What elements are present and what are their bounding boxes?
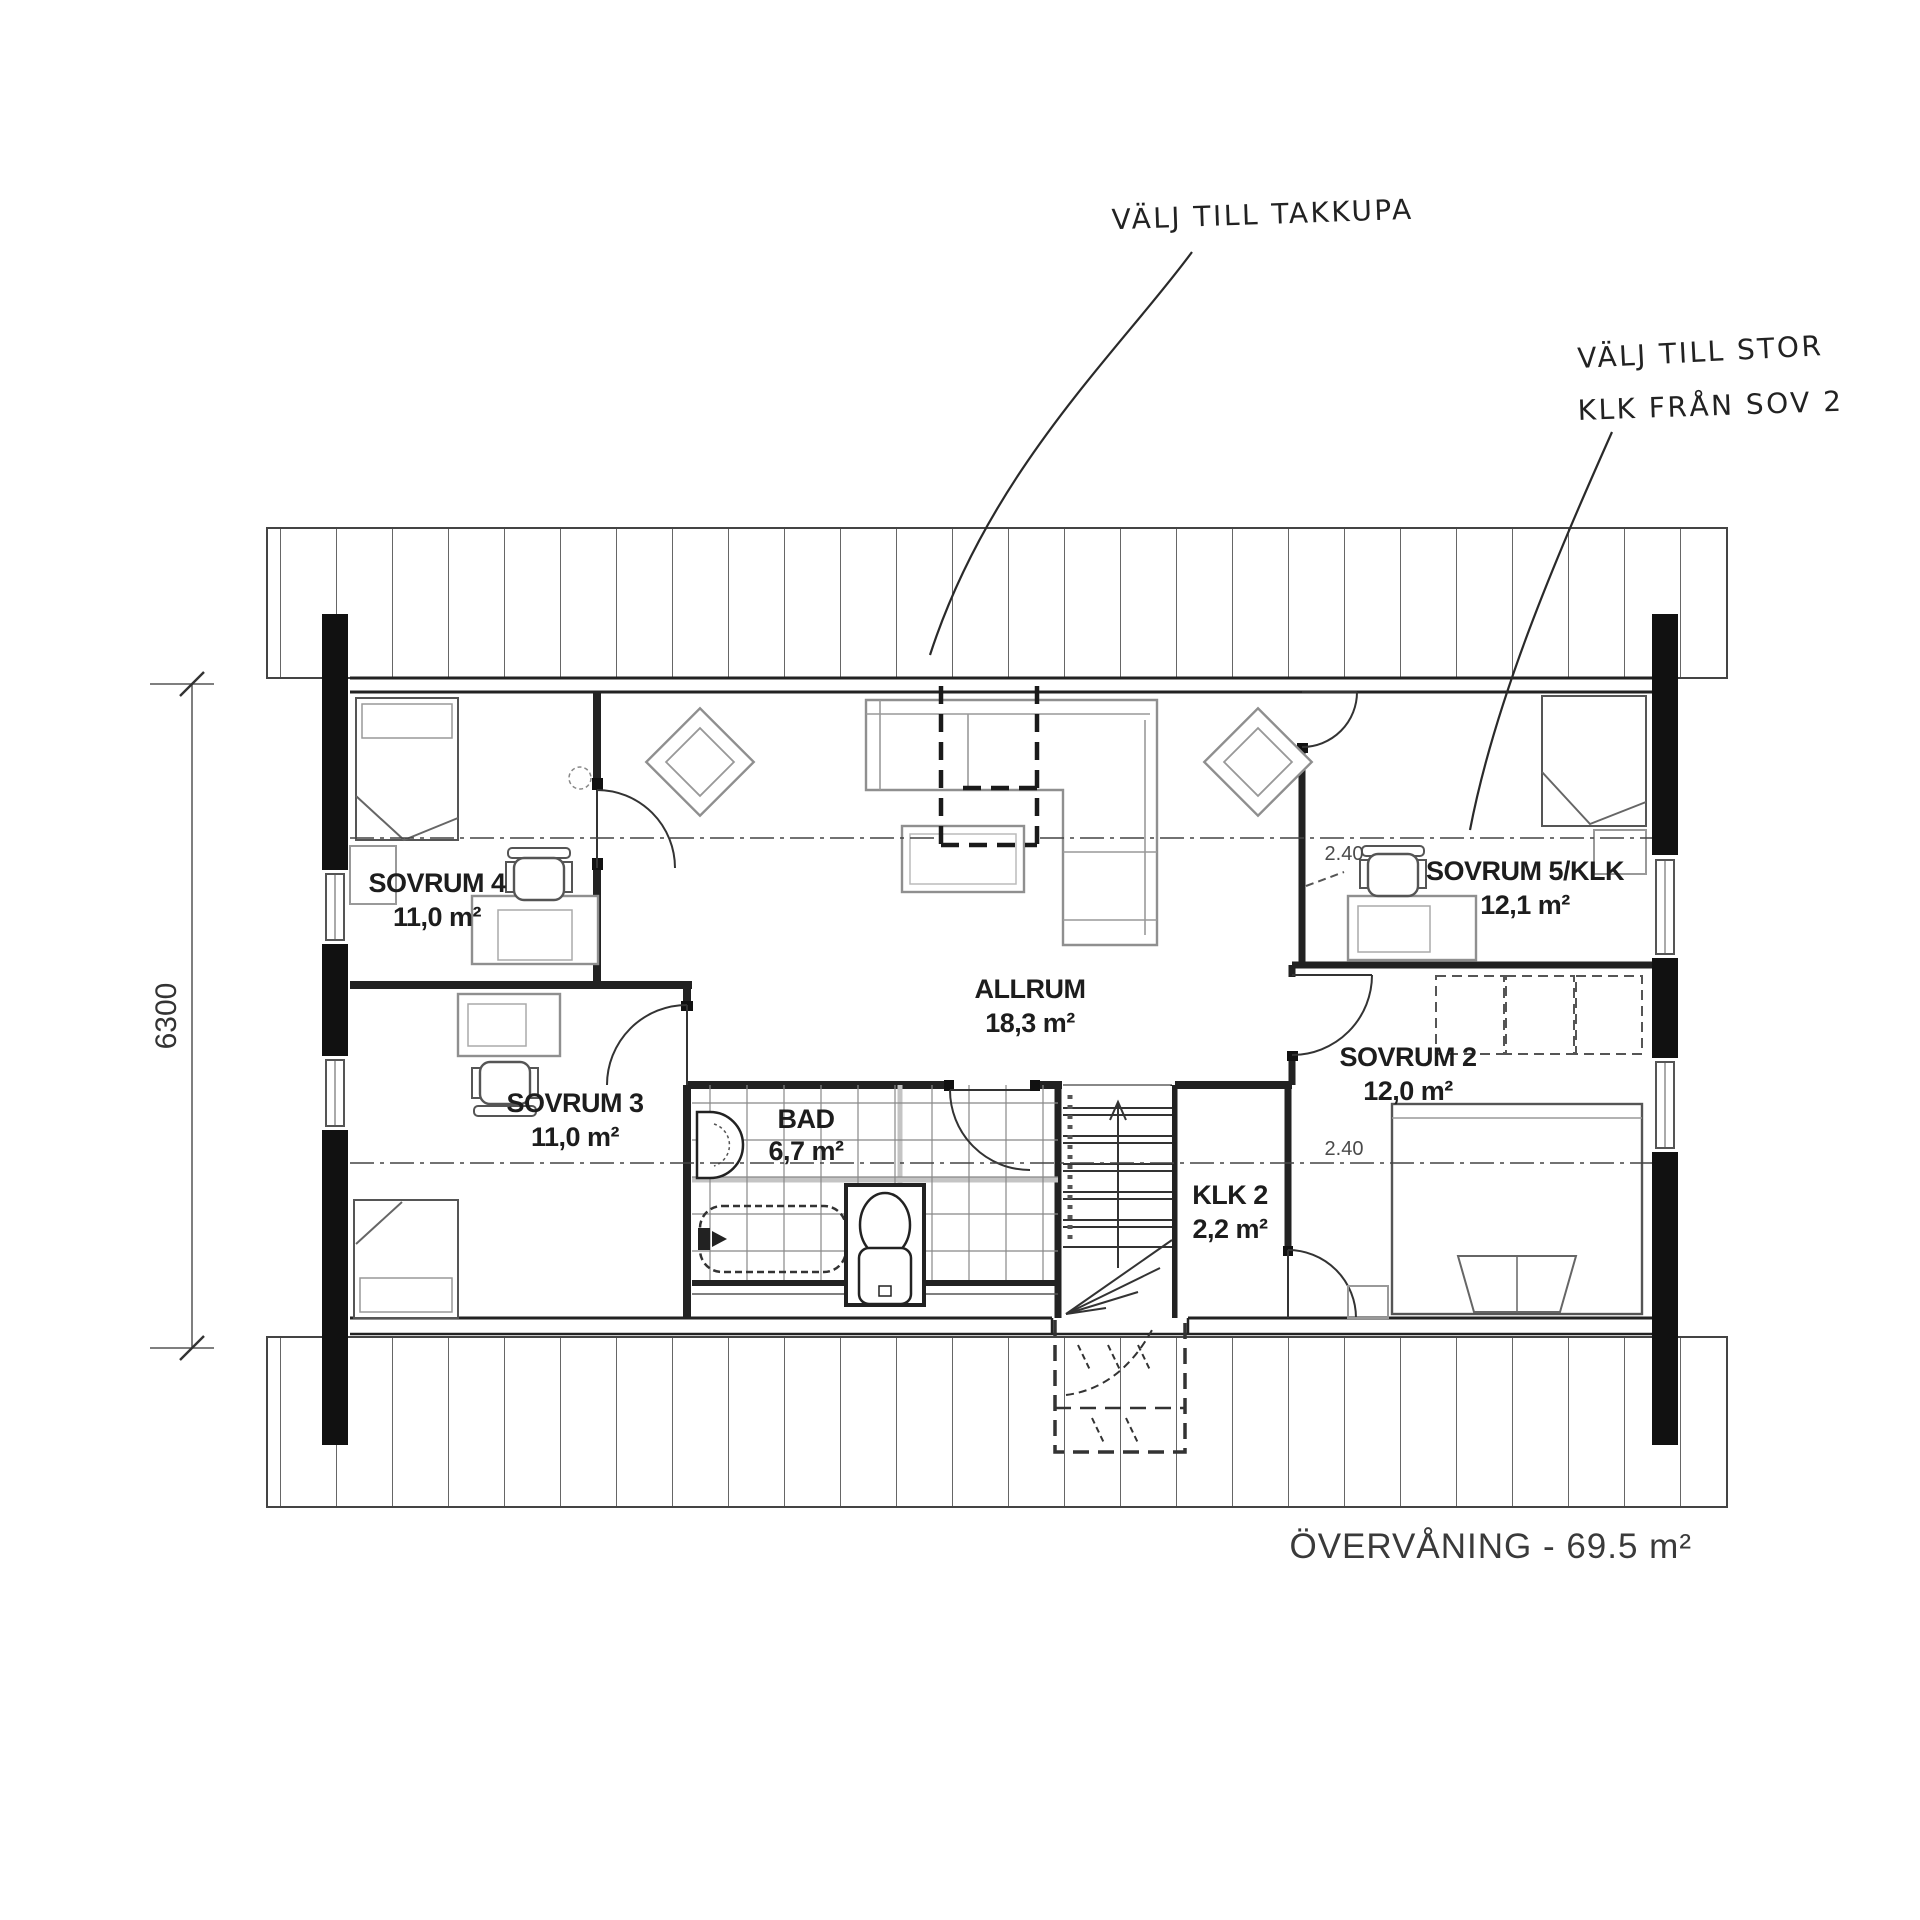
dimension-left-label: 6300	[150, 983, 183, 1050]
coffee-table	[902, 826, 1024, 892]
room-label-sovrum5-name: SOVRUM 5/KLK	[1426, 856, 1625, 886]
annotation-takkupa: VÄLJ TILL TAKKUPA	[1111, 193, 1414, 237]
room-label-sovrum2-area: 12,0 m²	[1363, 1076, 1453, 1106]
room-label-sovrum2-name: SOVRUM 2	[1339, 1042, 1476, 1072]
room-label-klk2-name: KLK 2	[1192, 1180, 1268, 1210]
roof-band-bottom	[267, 1337, 1727, 1507]
room-label-sovrum3-name: SOVRUM 3	[506, 1088, 644, 1118]
room-label-allrum-name: ALLRUM	[975, 974, 1086, 1004]
roof-band-top	[267, 528, 1727, 678]
ceiling-height-lower: 2.40	[1325, 1138, 1364, 1160]
floor-plan-drawing: 6300	[0, 0, 1920, 1920]
room-label-bad-name: BAD	[778, 1104, 835, 1134]
room-label-allrum-area: 18,3 m²	[985, 1008, 1075, 1038]
floor-plan-page: 6300	[0, 0, 1920, 1920]
room-label-sovrum4-name: SOVRUM 4	[368, 868, 506, 898]
bathtub-faucet	[698, 1228, 710, 1250]
ceiling-height-upper: 2.40	[1325, 843, 1364, 865]
chair-sovrum5	[1360, 846, 1426, 896]
desk-sovrum4	[472, 896, 598, 964]
annotation-klk-line1: VÄLJ TILL STOR	[1577, 329, 1824, 375]
annotation-klk-line2: KLK FRÅN SOV 2	[1577, 384, 1844, 427]
chair-sovrum4	[506, 848, 572, 900]
room-label-klk2-area: 2,2 m²	[1192, 1214, 1268, 1244]
room-label-sovrum3-area: 11,0 m²	[531, 1122, 620, 1152]
room-label-sovrum5-area: 12,1 m²	[1480, 890, 1570, 920]
room-label-bad-area: 6,7 m²	[768, 1136, 844, 1166]
floor-title: ÖVERVÅNING - 69.5 m²	[1289, 1527, 1692, 1566]
bed-sovrum4	[356, 698, 458, 840]
room-label-sovrum4-area: 11,0 m²	[393, 902, 482, 932]
bed-sovrum5	[1542, 696, 1646, 826]
bed-sovrum3	[354, 1200, 458, 1318]
